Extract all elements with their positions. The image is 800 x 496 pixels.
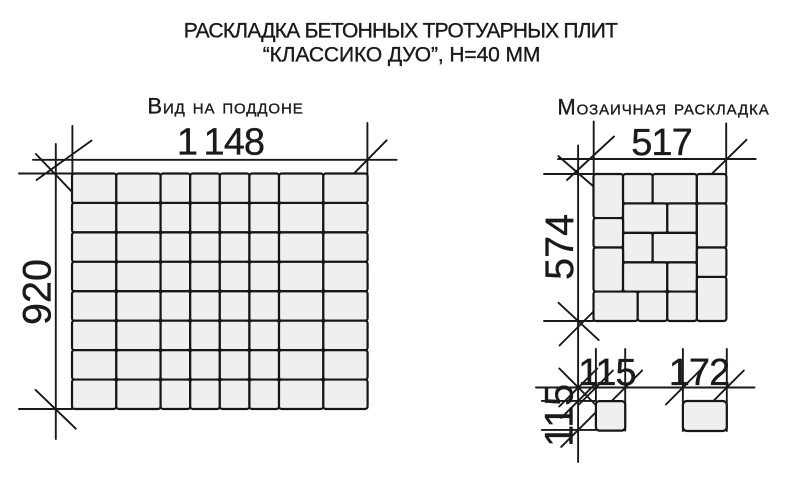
svg-text:“КЛАССИКО ДУО”, Н=40 ММ: “КЛАССИКО ДУО”, Н=40 ММ <box>263 44 541 67</box>
svg-text:Мозаичная раскладка: Мозаичная раскладка <box>557 95 769 120</box>
svg-text:1 148: 1 148 <box>177 121 264 163</box>
svg-text:172: 172 <box>669 352 729 394</box>
svg-text:115: 115 <box>538 384 582 447</box>
svg-text:115: 115 <box>578 352 636 394</box>
svg-text:517: 517 <box>631 122 691 164</box>
svg-text:РАСКЛАДКА БЕТОННЫХ ТРОТУАРНЫХ: РАСКЛАДКА БЕТОННЫХ ТРОТУАРНЫХ ПЛИТ <box>184 20 618 43</box>
svg-text:Вид на поддоне: Вид на поддоне <box>147 94 303 119</box>
svg-text:574: 574 <box>538 214 582 280</box>
svg-text:920: 920 <box>16 259 60 325</box>
